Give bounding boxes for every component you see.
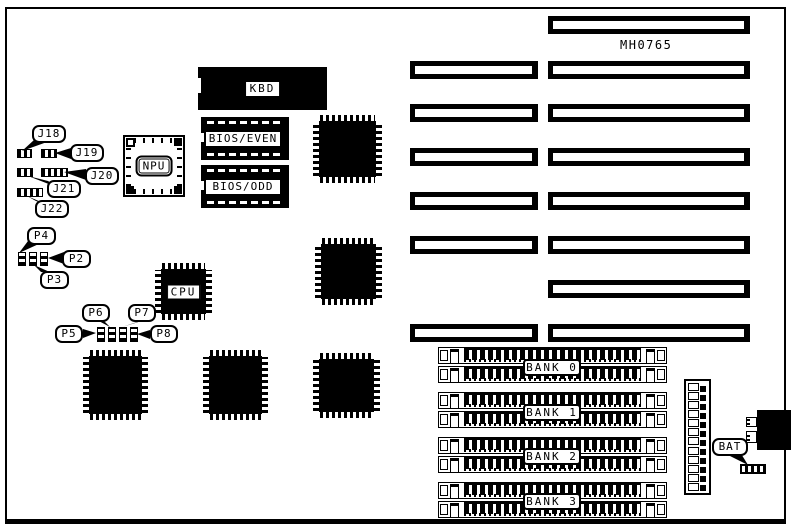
motherboard-diagram: MH0765 KBD BIOS/EVEN BIOS/ODD NPU CPU [0, 0, 791, 527]
bank-label: BANK 3 [523, 493, 581, 510]
callout-p4: P4 [27, 227, 56, 245]
callout-p7: P7 [128, 304, 156, 322]
callout-p6: P6 [82, 304, 110, 322]
bank-label: BANK 1 [523, 404, 581, 421]
callout-j19: J19 [70, 144, 104, 162]
callout-tails [0, 0, 791, 527]
callout-j21: J21 [47, 180, 81, 198]
callout-p5: P5 [55, 325, 83, 343]
callout-p3: P3 [40, 271, 69, 289]
callout-p8: P8 [150, 325, 178, 343]
bank-label: BANK 0 [523, 359, 581, 376]
callout-bat: BAT [712, 438, 748, 456]
edge-connector [746, 417, 757, 427]
callout-j18: J18 [32, 125, 66, 143]
bank-label: BANK 2 [523, 448, 581, 465]
callout-j20: J20 [85, 167, 119, 185]
edge-connector [746, 431, 757, 443]
callout-p2: P2 [62, 250, 91, 268]
callout-j22: J22 [35, 200, 69, 218]
keyboard-din-connector [757, 410, 791, 450]
